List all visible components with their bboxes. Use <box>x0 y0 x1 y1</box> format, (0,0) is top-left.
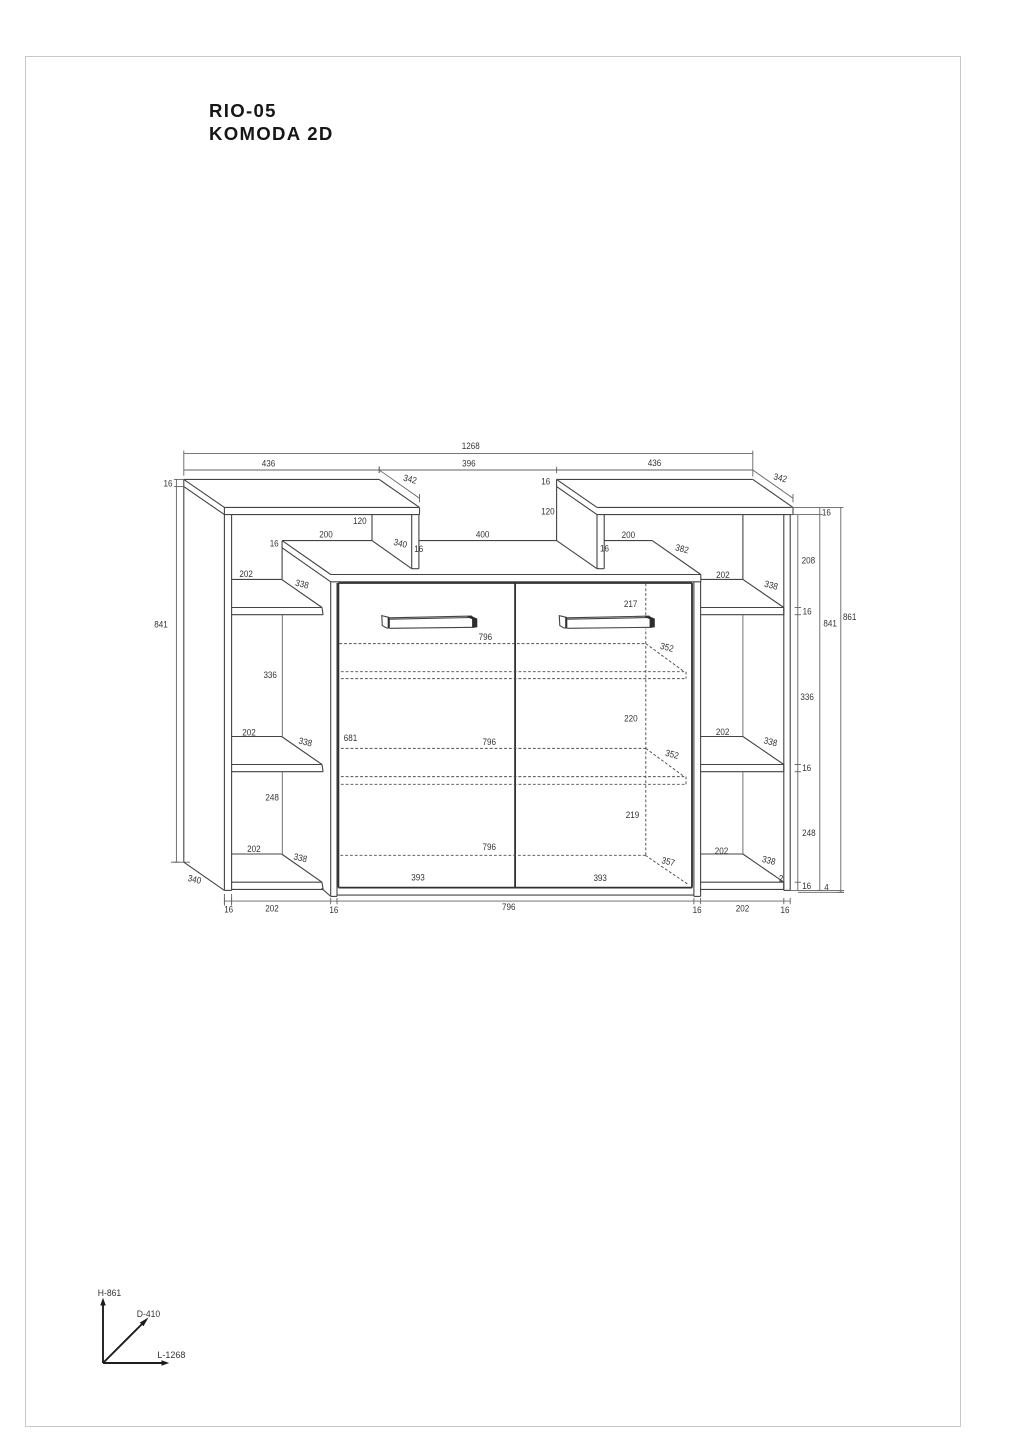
svg-text:202: 202 <box>716 727 730 737</box>
svg-text:217: 217 <box>624 599 638 609</box>
svg-text:16: 16 <box>329 905 338 915</box>
svg-text:342: 342 <box>773 472 789 485</box>
svg-text:336: 336 <box>800 692 814 702</box>
svg-text:681: 681 <box>344 733 358 743</box>
svg-text:16: 16 <box>803 607 812 617</box>
svg-text:338: 338 <box>298 736 314 749</box>
svg-text:400: 400 <box>476 530 490 540</box>
svg-text:208: 208 <box>802 556 816 566</box>
svg-text:248: 248 <box>265 792 279 802</box>
svg-text:4: 4 <box>824 883 829 893</box>
svg-text:342: 342 <box>402 473 418 486</box>
svg-text:436: 436 <box>262 459 276 469</box>
svg-text:861: 861 <box>843 612 857 622</box>
svg-text:202: 202 <box>736 904 750 914</box>
svg-text:796: 796 <box>479 632 493 642</box>
svg-text:202: 202 <box>265 903 279 913</box>
svg-text:382: 382 <box>674 542 690 555</box>
svg-text:16: 16 <box>224 905 233 915</box>
svg-text:D-410: D-410 <box>137 1309 160 1320</box>
svg-text:841: 841 <box>154 620 168 630</box>
svg-text:841: 841 <box>823 619 837 629</box>
svg-text:200: 200 <box>319 530 333 540</box>
svg-text:16: 16 <box>802 763 811 773</box>
svg-text:396: 396 <box>462 459 476 469</box>
svg-text:16: 16 <box>781 905 790 915</box>
svg-text:796: 796 <box>502 902 516 912</box>
svg-text:796: 796 <box>483 842 497 852</box>
svg-text:338: 338 <box>763 735 779 748</box>
svg-text:202: 202 <box>239 569 253 579</box>
svg-text:338: 338 <box>761 854 777 867</box>
svg-text:202: 202 <box>242 727 256 737</box>
svg-text:393: 393 <box>411 873 425 883</box>
svg-text:1268: 1268 <box>462 441 480 451</box>
svg-text:248: 248 <box>802 828 816 838</box>
svg-text:16: 16 <box>164 478 173 488</box>
svg-text:16: 16 <box>541 476 550 486</box>
svg-text:796: 796 <box>483 737 497 747</box>
svg-text:219: 219 <box>626 810 640 820</box>
svg-text:202: 202 <box>716 570 730 580</box>
svg-text:16: 16 <box>270 539 279 549</box>
svg-text:L-1268: L-1268 <box>157 1350 185 1361</box>
svg-text:338: 338 <box>294 578 310 591</box>
svg-text:220: 220 <box>624 713 638 723</box>
svg-text:2: 2 <box>779 874 784 884</box>
svg-text:202: 202 <box>247 844 261 854</box>
svg-text:352: 352 <box>664 748 680 761</box>
svg-text:202: 202 <box>715 846 729 856</box>
svg-text:200: 200 <box>622 530 636 540</box>
svg-text:H-861: H-861 <box>98 1288 121 1299</box>
svg-text:120: 120 <box>541 507 555 517</box>
svg-text:357: 357 <box>660 855 676 868</box>
svg-text:120: 120 <box>353 516 367 526</box>
svg-text:340: 340 <box>187 873 203 886</box>
svg-text:16: 16 <box>693 905 702 915</box>
svg-text:338: 338 <box>293 852 309 865</box>
svg-text:16: 16 <box>414 544 423 554</box>
svg-text:16: 16 <box>822 508 831 518</box>
svg-text:336: 336 <box>263 670 277 680</box>
svg-text:338: 338 <box>763 579 779 592</box>
svg-text:340: 340 <box>393 537 409 550</box>
svg-text:352: 352 <box>659 641 675 654</box>
svg-text:393: 393 <box>593 873 607 883</box>
svg-text:16: 16 <box>802 881 811 891</box>
svg-text:436: 436 <box>648 458 662 468</box>
